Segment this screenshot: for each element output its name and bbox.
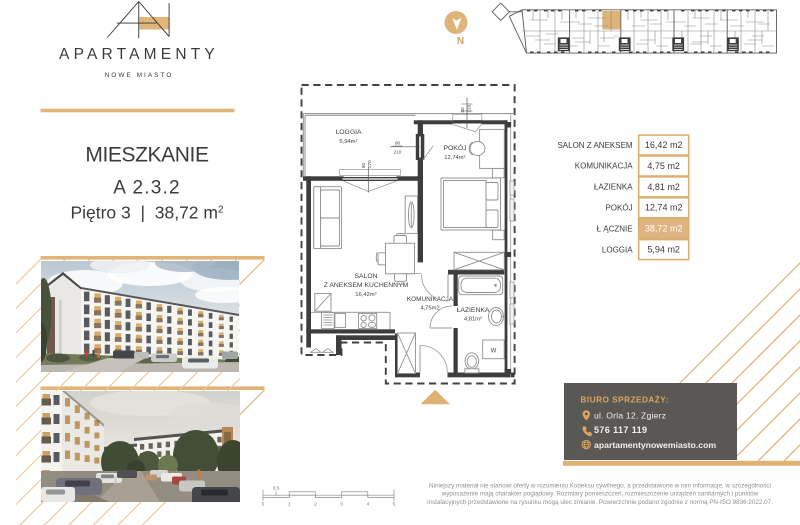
svg-text:5: 5: [393, 502, 396, 508]
svg-text:4,81m2: 4,81m2: [464, 316, 482, 323]
svg-text:SALON: SALON: [354, 273, 377, 280]
svg-text:0: 0: [262, 502, 265, 508]
svg-text:NOWE MIASTO: NOWE MIASTO: [105, 72, 174, 79]
svg-text:APARTAMENTY: APARTAMENTY: [59, 46, 219, 63]
svg-text:LOGGIA: LOGGIA: [335, 129, 362, 136]
svg-text:80: 80: [361, 162, 366, 168]
svg-text:16,42 m2: 16,42 m2: [645, 140, 683, 150]
svg-text:90: 90: [395, 141, 401, 146]
svg-text:4,75 m2: 4,75 m2: [647, 161, 680, 171]
svg-text:KOMUNIKACJA: KOMUNIKACJA: [407, 296, 454, 303]
svg-text:270: 270: [367, 160, 372, 168]
svg-text:576 117 119: 576 117 119: [594, 425, 647, 435]
svg-text:ul. Orla 12, Zgierz: ul. Orla 12, Zgierz: [594, 410, 666, 420]
svg-text:16,42m2: 16,42m2: [355, 292, 376, 299]
svg-text:ŁAZIENKA: ŁAZIENKA: [457, 307, 490, 314]
svg-text:BIURO SPRZEDAŻY:: BIURO SPRZEDAŻY:: [581, 395, 669, 405]
svg-text:4,75m2: 4,75m2: [420, 306, 439, 312]
svg-text:apartamentynowemiasto.com: apartamentynowemiasto.com: [594, 440, 716, 450]
svg-text:38,72 m2: 38,72 m2: [645, 224, 683, 234]
svg-text:12,74m2: 12,74m2: [444, 155, 465, 162]
svg-text:Piętro 3 | 38,72 m2: Piętro 3 | 38,72 m2: [70, 202, 224, 222]
svg-text:LOGGIA: LOGGIA: [602, 245, 633, 254]
svg-text:4,81 m2: 4,81 m2: [647, 182, 680, 192]
svg-text:210: 210: [394, 150, 402, 155]
svg-text:4: 4: [366, 502, 369, 508]
svg-text:SALON Z ANEKSEM: SALON Z ANEKSEM: [557, 141, 632, 150]
svg-text:5,94m2: 5,94m2: [339, 139, 357, 146]
svg-text:POKÓJ: POKÓJ: [605, 204, 632, 213]
svg-text:ŁAZIENKA: ŁAZIENKA: [594, 183, 633, 192]
svg-text:12,74 m2: 12,74 m2: [645, 203, 683, 213]
svg-text:1: 1: [288, 502, 291, 508]
svg-text:5,94 m2: 5,94 m2: [647, 245, 680, 255]
svg-text:POKÓJ: POKÓJ: [443, 143, 466, 152]
svg-text:0,5: 0,5: [273, 486, 280, 492]
svg-text:2: 2: [314, 502, 317, 508]
svg-text:N: N: [457, 36, 464, 47]
svg-text:3: 3: [340, 502, 343, 508]
svg-text:KOMUNIKACJA: KOMUNIKACJA: [575, 162, 633, 171]
svg-text:80: 80: [460, 107, 465, 113]
svg-text:wyposażenie mają charakter pog: wyposażenie mają charakter poglądowy. Ro…: [441, 491, 759, 498]
svg-text:MIESZKANIE: MIESZKANIE: [85, 144, 209, 167]
svg-text:instalacyjnych przedstawione n: instalacyjnych przedstawione na rysunku …: [427, 499, 773, 506]
svg-text:Z ANEKSEM KUCHENNYM: Z ANEKSEM KUCHENNYM: [324, 282, 409, 289]
svg-text:Ł ĄCZNIE: Ł ĄCZNIE: [597, 224, 633, 233]
svg-text:A 2.3.2: A 2.3.2: [113, 177, 181, 198]
svg-text:W: W: [491, 349, 497, 355]
svg-text:Niniejszy materiał nie stanowi: Niniejszy materiał nie stanowi oferty w …: [429, 482, 771, 489]
svg-text:210: 210: [466, 104, 471, 112]
